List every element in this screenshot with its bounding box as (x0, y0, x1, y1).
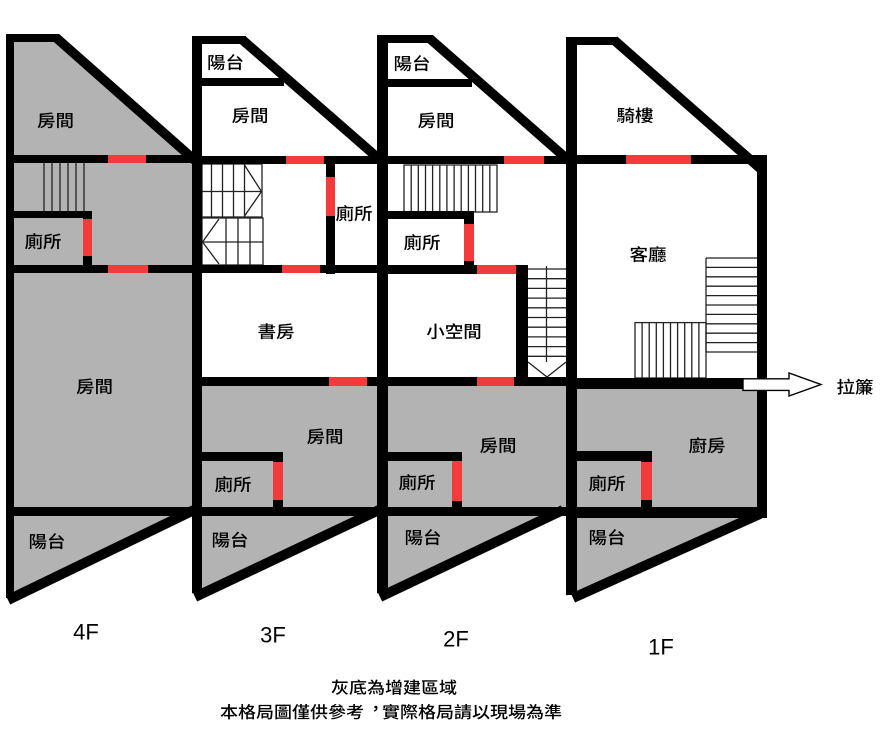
svg-text:4F: 4F (73, 620, 99, 645)
svg-text:1F: 1F (648, 635, 674, 660)
svg-text:3F: 3F (260, 623, 286, 648)
svg-text:2F: 2F (443, 627, 469, 652)
